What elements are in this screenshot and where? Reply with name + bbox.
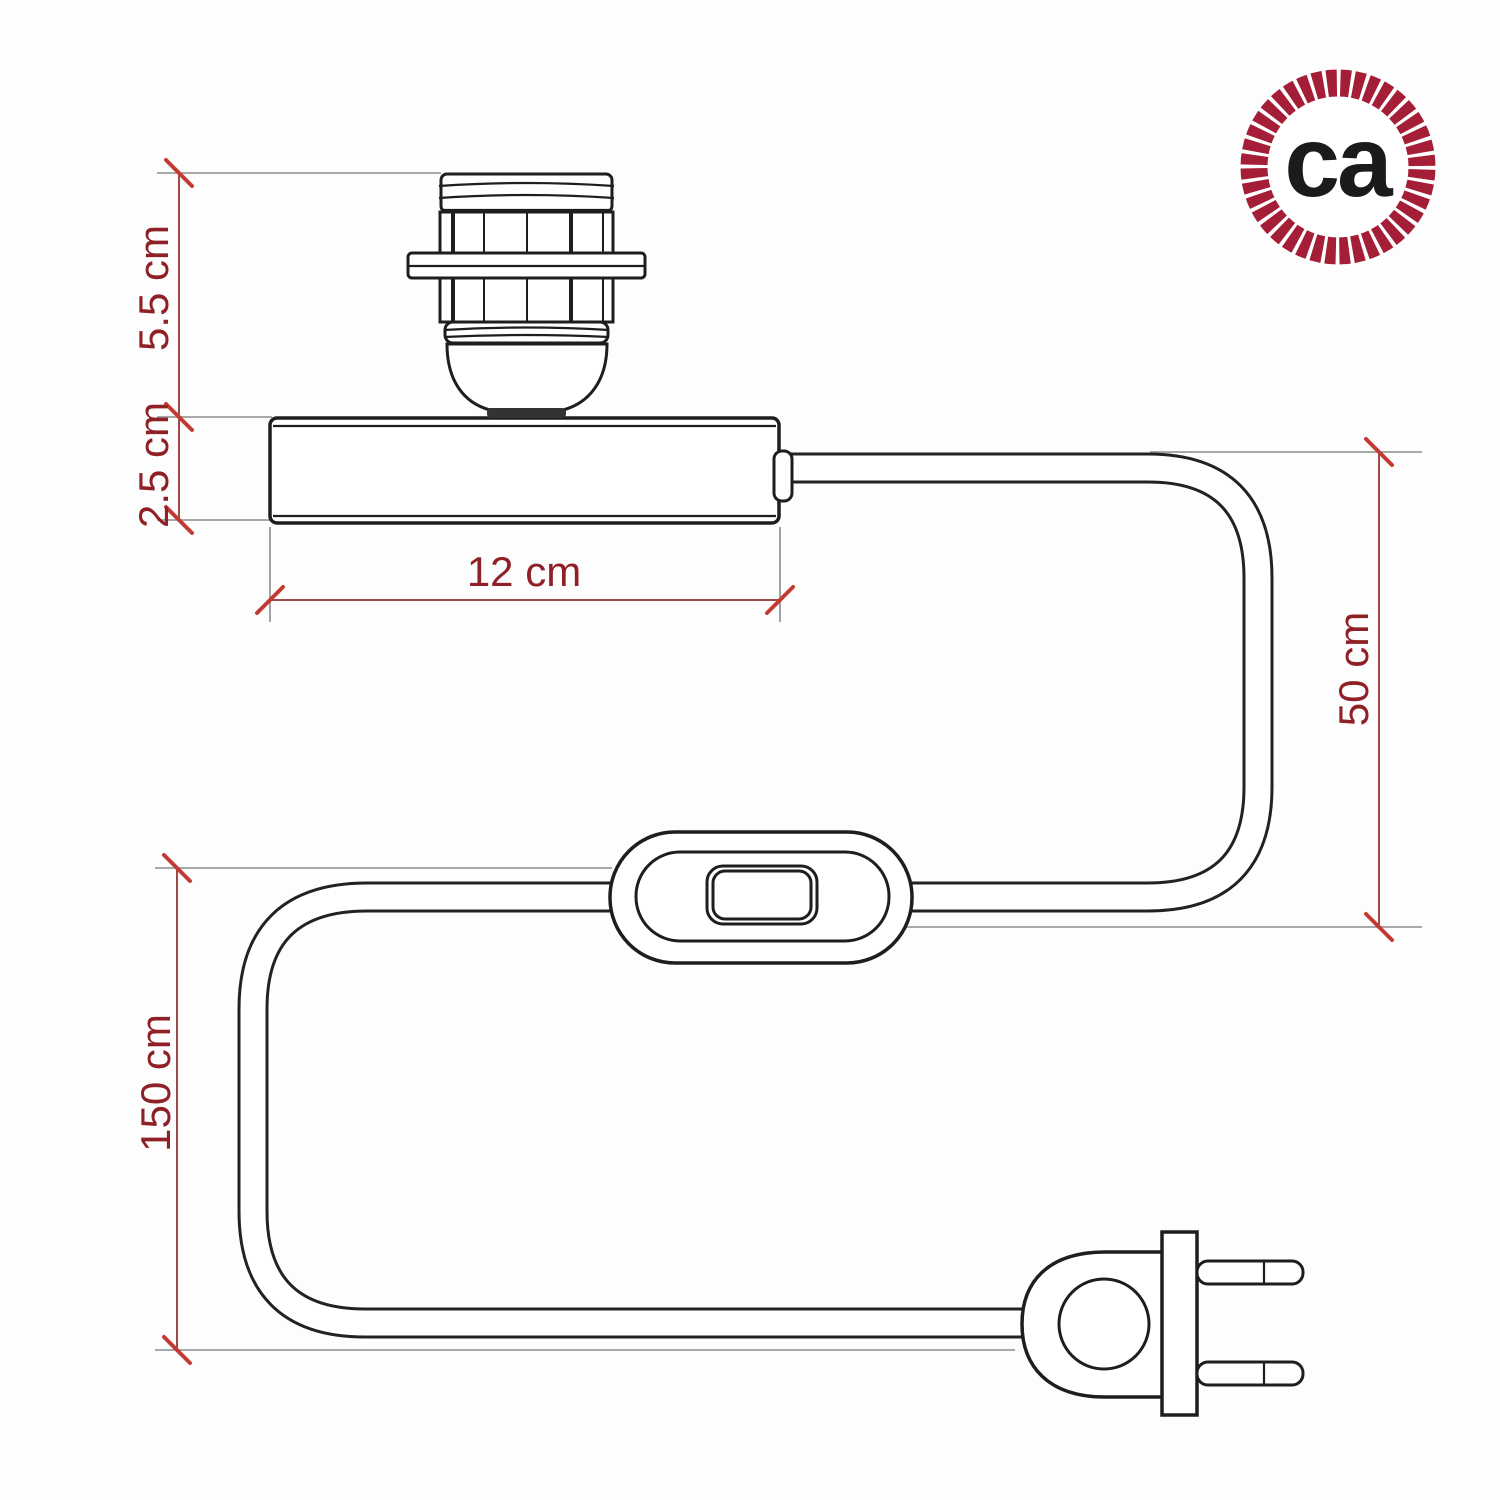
extension-lines [155,173,1422,1350]
dim-label-base-width: 12 cm [467,548,581,595]
brand-logo: ca [1243,72,1433,262]
socket-cage-lower [440,278,613,322]
logo-ca-text: ca [1284,106,1394,218]
technical-drawing-canvas: 5.5 cm 2.5 cm 12 cm 50 cm 150 cm [0,0,1500,1500]
power-plug [1022,1232,1303,1415]
cable-strain-relief [774,451,792,501]
plug-face-plate [1162,1232,1197,1415]
lamp-holder [408,174,645,418]
dim-label-socket-height: 5.5 cm [130,225,177,351]
lamp-base [270,418,792,523]
tick-marks [164,160,1392,1363]
inline-switch [610,832,912,963]
dimension-labels: 5.5 cm 2.5 cm 12 cm 50 cm 150 cm [130,225,1377,1152]
base-body [270,418,779,523]
lamp-dimension-diagram: 5.5 cm 2.5 cm 12 cm 50 cm 150 cm [0,0,1500,1500]
dim-label-cable-150cm: 150 cm [132,1014,179,1152]
socket-ribs [444,322,609,343]
dim-label-cable-50cm: 50 cm [1330,612,1377,726]
socket-cage-upper [440,212,613,253]
plug-pin-bottom [1197,1362,1303,1385]
plug-body-circle [1059,1279,1149,1369]
socket-neck [487,408,566,418]
plug-pin-top [1197,1261,1303,1284]
socket-cup [447,344,607,410]
switch-button-inner [713,871,811,919]
socket-thread [439,174,614,212]
shade-ring [408,253,645,278]
dim-label-base-height: 2.5 cm [130,402,177,528]
dimension-lines [177,173,1379,1350]
